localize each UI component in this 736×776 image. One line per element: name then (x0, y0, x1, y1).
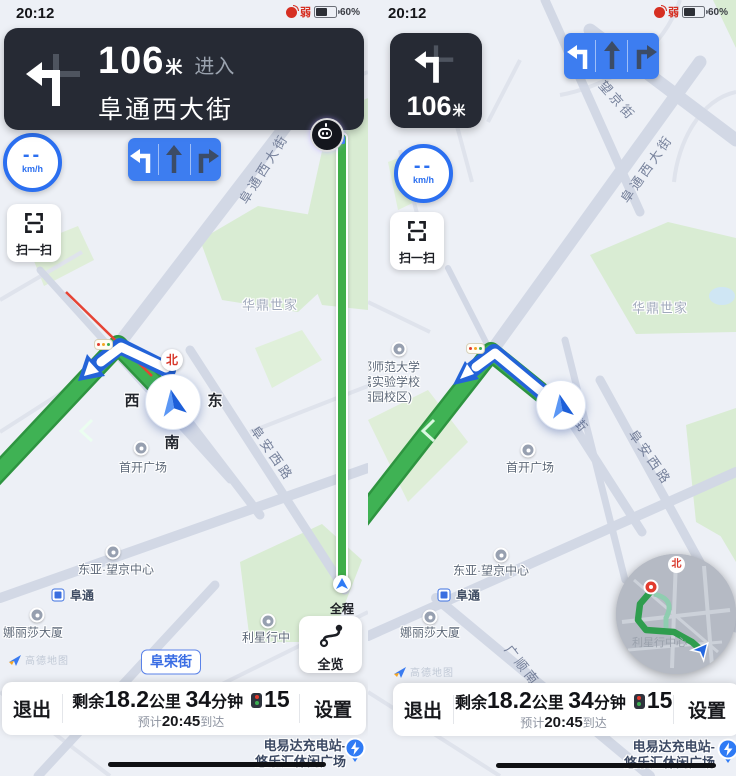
nav-bottom-bar: 退出 剩余18.2公里 34分钟15 预计20:45到达 设置 (2, 682, 366, 735)
gps-signal-icon (286, 7, 297, 18)
metro-station-label: 阜通 (456, 587, 480, 604)
poi-label: 东亚·望京中心 (78, 561, 154, 578)
poi-label: 东亚·望京中心 (453, 562, 529, 579)
status-bar: 20:12 弱 60% (0, 0, 368, 22)
minimap-poi-label: 利星行中心 (632, 634, 687, 650)
scan-button[interactable]: 扫一扫 (390, 212, 444, 270)
amap-logo-icon (393, 665, 407, 679)
exit-button[interactable]: 退出 (393, 683, 453, 736)
amap-logo-icon (8, 653, 22, 667)
poi-label: 娜丽莎大厦 (3, 624, 63, 641)
settings-button[interactable]: 设置 (674, 683, 736, 736)
poi-pin[interactable] (30, 608, 45, 623)
progress-car-marker (333, 575, 351, 593)
signal-weak-label: 弱 (300, 4, 311, 20)
turn-left-icon (413, 41, 459, 87)
progress-label[interactable]: 全程 (330, 600, 354, 617)
map-attribution: 高德地图 (393, 664, 454, 679)
charging-station-pin[interactable] (717, 738, 736, 764)
traffic-light-count-icon (251, 693, 262, 708)
school-poi-label: 都师范大学 属实验学校 西园校区) (368, 360, 420, 405)
lane-straight-icon (599, 40, 625, 72)
traffic-light-count-icon (634, 694, 645, 709)
charging-station-pin[interactable] (344, 737, 366, 763)
current-position-marker (145, 374, 201, 430)
poi-pin[interactable] (494, 548, 509, 563)
speed-value: -- (7, 146, 58, 164)
voice-assistant-icon[interactable] (310, 118, 344, 152)
poi-label: 首开广场 (119, 459, 167, 476)
poi-label: 利星行中 (242, 629, 290, 646)
home-indicator[interactable] (108, 762, 326, 767)
turn-distance: 106 (98, 40, 164, 82)
lane-guidance-panel (564, 33, 659, 79)
turn-left-icon (24, 48, 88, 112)
dual-navigation-screenshots: 20:12 弱 60% 106米进入 阜通西大街 (0, 0, 736, 776)
minimap-north-badge: 北 (668, 556, 685, 573)
poi-pin[interactable] (134, 441, 149, 456)
current-position-marker (536, 380, 586, 430)
overview-label: 全览 (299, 654, 362, 673)
route-overview-icon (317, 623, 345, 649)
nav-bottom-bar: 退出 剩余18.2公里 34分钟15 预计20:45到达 设置 (393, 683, 736, 736)
traffic-light-marker (466, 343, 485, 354)
route-overview-minimap[interactable]: 利星行中心 北 (616, 554, 736, 674)
current-road-pill: 阜荣街 (141, 650, 201, 675)
scan-icon (405, 219, 429, 243)
traffic-light-marker (94, 339, 113, 350)
poi-label: 娜丽莎大厦 (400, 624, 460, 641)
lane-straight-icon (161, 144, 187, 176)
status-bar: 20:12 弱 60% (368, 0, 736, 22)
turn-action: 进入 (194, 56, 234, 78)
overview-button[interactable]: 全览 (299, 616, 362, 673)
clock: 20:12 (16, 5, 54, 22)
battery-percent: 60% (708, 7, 728, 18)
lane-turn-right-icon (631, 40, 657, 72)
eta-line: 预计20:45到达 (455, 714, 672, 732)
signal-weak-label: 弱 (668, 4, 679, 20)
turn-distance-unit: 米 (453, 103, 466, 118)
area-label: 华鼎世家 (632, 298, 688, 317)
nav-panel-left: 20:12 弱 60% 106米进入 阜通西大街 (0, 0, 369, 776)
poi-pin[interactable] (392, 342, 407, 357)
compass-south: 南 (164, 432, 179, 453)
battery-percent: 60% (340, 7, 360, 18)
home-indicator[interactable] (496, 763, 716, 768)
next-road-name: 阜通西大街 (98, 90, 233, 126)
compass-north-badge: 北 (161, 349, 183, 371)
metro-station-label: 阜通 (70, 587, 94, 604)
poi-label: 首开广场 (506, 459, 554, 476)
lane-turn-right-icon (193, 144, 219, 176)
poi-pin[interactable] (106, 545, 121, 560)
scan-label: 扫一扫 (7, 241, 61, 258)
trip-summary: 剩余18.2公里 34分钟15 (64, 686, 298, 713)
lane-guidance-panel (128, 138, 221, 181)
compass-east: 东 (207, 390, 222, 411)
nav-panel-right: 20:12 弱 60% 106米 (368, 0, 736, 776)
speed-dial: -- km/h (3, 133, 62, 192)
battery-icon (314, 6, 337, 18)
speed-value: -- (398, 157, 449, 175)
poi-pin[interactable] (423, 610, 438, 625)
battery-icon (682, 6, 705, 18)
metro-station-icon[interactable] (52, 589, 65, 602)
turn-instruction-banner[interactable]: 106米进入 阜通西大街 (4, 28, 364, 130)
clock: 20:12 (388, 5, 426, 22)
eta-line: 预计20:45到达 (64, 713, 298, 731)
metro-station-icon[interactable] (438, 589, 451, 602)
route-progress-bar (336, 132, 348, 584)
gps-signal-icon (654, 7, 665, 18)
amap-logo-text: 高德地图 (410, 664, 454, 679)
settings-button[interactable]: 设置 (300, 682, 366, 735)
poi-pin[interactable] (261, 614, 276, 629)
turn-distance-unit: 米 (165, 58, 182, 77)
speed-unit: km/h (398, 175, 449, 185)
compass-west: 西 (124, 390, 139, 411)
speed-unit: km/h (7, 164, 58, 174)
speed-dial: -- km/h (394, 144, 453, 203)
trip-summary: 剩余18.2公里 34分钟15 (455, 687, 672, 714)
map-attribution: 高德地图 (8, 652, 69, 667)
amap-logo-text: 高德地图 (25, 652, 69, 667)
exit-button[interactable]: 退出 (2, 682, 62, 735)
scan-icon (22, 211, 46, 235)
turn-instruction-card[interactable]: 106米 (390, 33, 482, 128)
poi-pin[interactable] (521, 443, 536, 458)
area-label: 华鼎世家 (242, 295, 298, 314)
lane-turn-left-icon (130, 144, 156, 176)
scan-button[interactable]: 扫一扫 (7, 204, 61, 262)
scan-label: 扫一扫 (390, 249, 444, 266)
lane-turn-left-icon (567, 40, 593, 72)
turn-distance: 106 (406, 91, 451, 121)
